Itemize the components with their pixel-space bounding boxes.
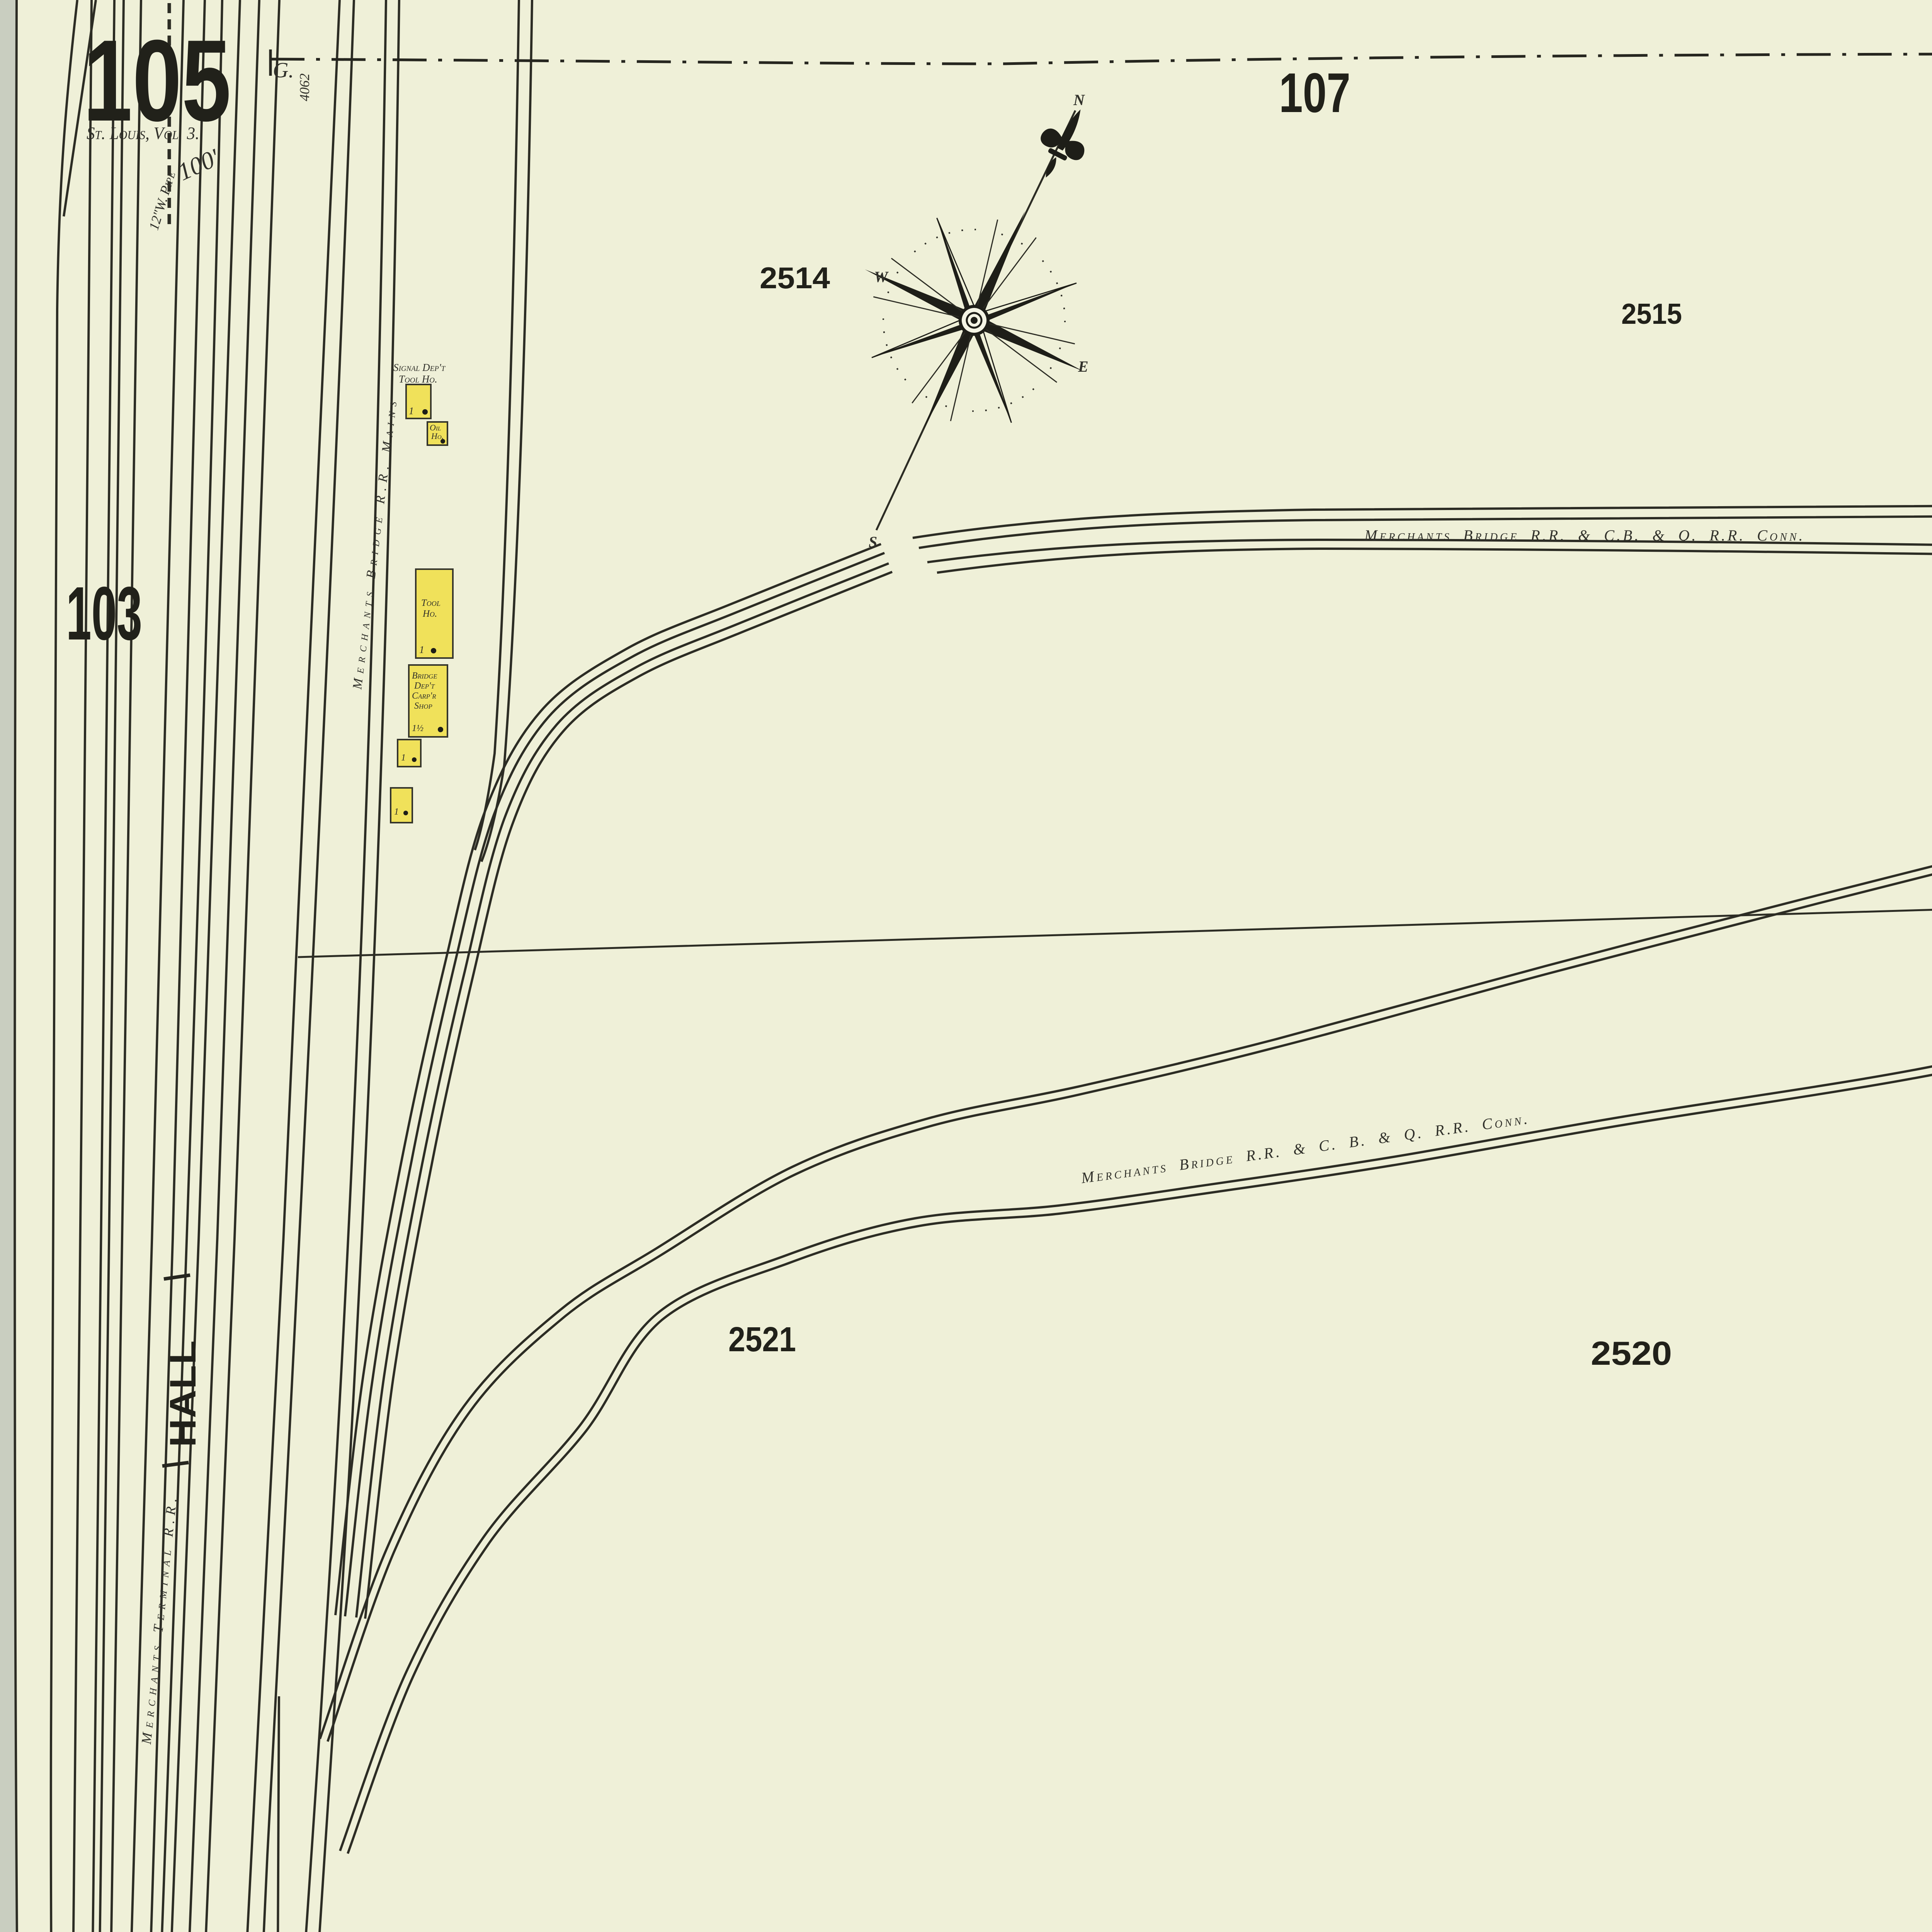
svg-text:1½: 1½ — [412, 723, 423, 733]
svg-text:N: N — [1073, 91, 1085, 109]
svg-text:Carp'r: Carp'r — [412, 691, 436, 701]
svg-text:W: W — [874, 268, 889, 286]
svg-text:E: E — [1078, 358, 1088, 375]
svg-text:Merchants Bridge R.R. & C.B: Merchants Bridge R.R. & C.B. & Q. R.R. C… — [1364, 527, 1805, 544]
svg-text:4062: 4062 — [297, 73, 312, 101]
svg-text:2521: 2521 — [728, 1320, 796, 1359]
svg-text:1: 1 — [419, 644, 424, 655]
svg-text:Tool Ho.: Tool Ho. — [399, 373, 437, 385]
svg-text:S: S — [869, 533, 877, 551]
svg-text:G.: G. — [273, 58, 294, 82]
svg-text:2515: 2515 — [1621, 298, 1682, 330]
svg-text:HALL: HALL — [162, 1340, 204, 1447]
svg-text:Shop: Shop — [414, 701, 432, 711]
svg-text:St. Louis, Vol. 3.: St. Louis, Vol. 3. — [87, 123, 199, 143]
svg-text:103: 103 — [66, 571, 142, 656]
svg-text:Ho.: Ho. — [422, 609, 437, 619]
svg-text:1: 1 — [394, 807, 399, 817]
svg-text:107: 107 — [1279, 61, 1350, 124]
svg-text:Dep't: Dep't — [414, 681, 435, 691]
svg-text:Bridge: Bridge — [412, 671, 437, 681]
svg-text:Tool: Tool — [421, 598, 440, 608]
svg-text:1: 1 — [401, 753, 406, 763]
svg-text:1: 1 — [409, 405, 414, 417]
svg-text:2520: 2520 — [1591, 1335, 1672, 1372]
svg-text:2514: 2514 — [760, 261, 830, 295]
svg-text:Signal Dep't: Signal Dep't — [393, 362, 446, 373]
